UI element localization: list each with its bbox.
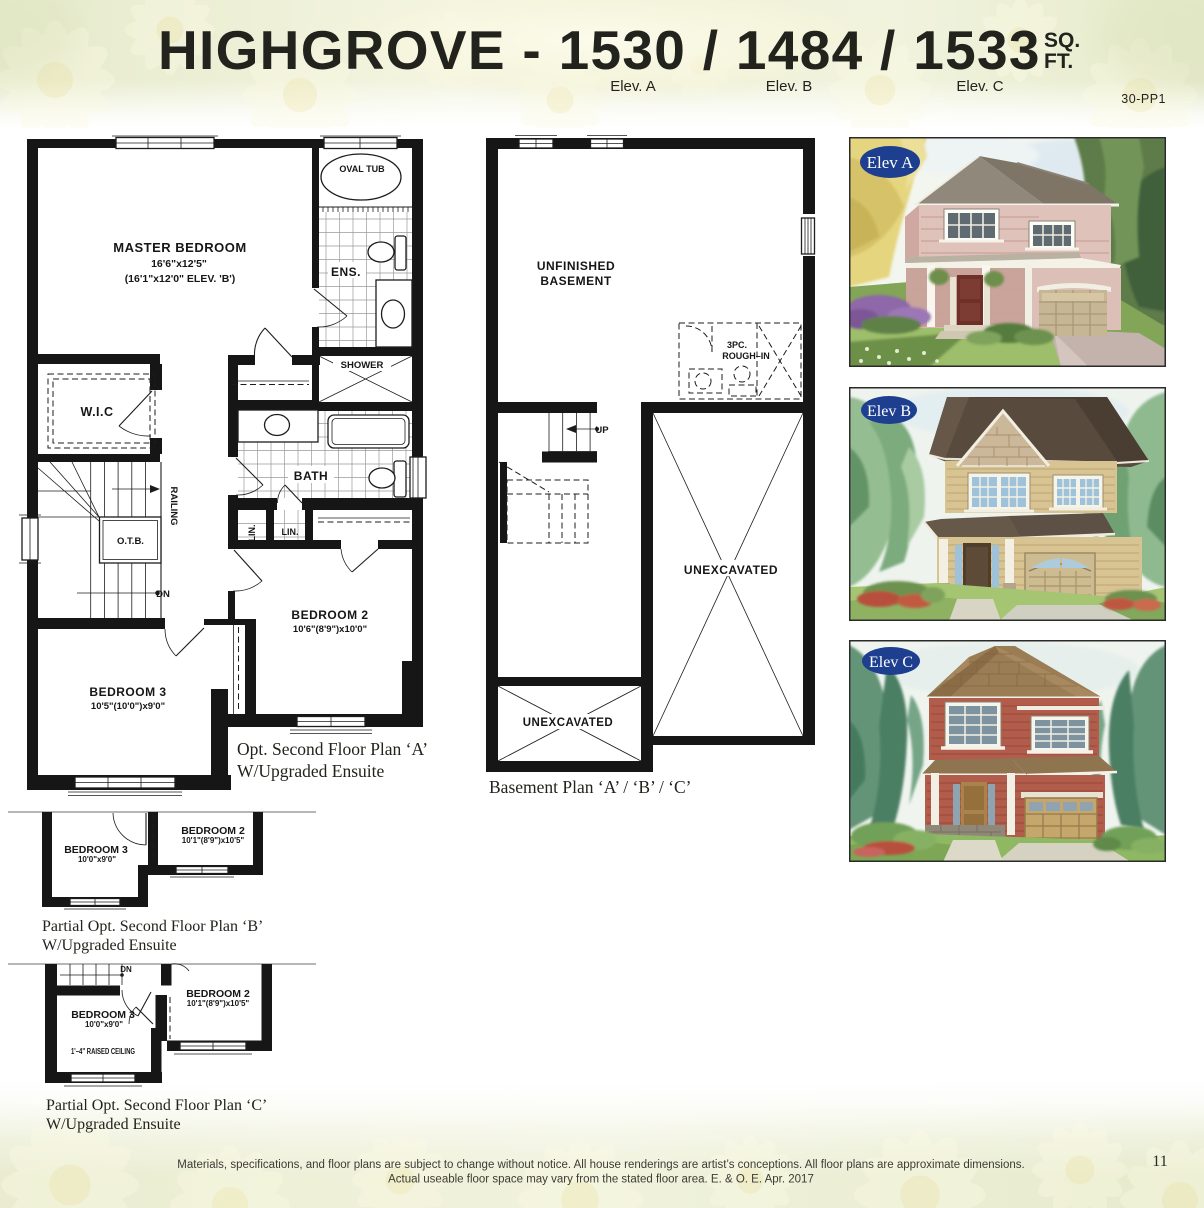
svg-text:10'6"(8'9")x10'0": 10'6"(8'9")x10'0" xyxy=(293,624,367,635)
svg-text:BATH: BATH xyxy=(294,469,328,483)
svg-text:W/Upgraded Ensuite: W/Upgraded Ensuite xyxy=(46,1116,181,1133)
svg-text:OVAL TUB: OVAL TUB xyxy=(339,164,385,174)
svg-text:BASEMENT: BASEMENT xyxy=(540,274,612,288)
svg-text:16'6"x12'5": 16'6"x12'5" xyxy=(151,258,207,270)
svg-text:Elev A: Elev A xyxy=(867,153,914,172)
svg-text:O.T.B.: O.T.B. xyxy=(117,536,144,547)
svg-text:11: 11 xyxy=(1152,1153,1167,1170)
svg-text:W/Upgraded Ensuite: W/Upgraded Ensuite xyxy=(237,761,384,781)
svg-text:Partial Opt. Second Floor Plan: Partial Opt. Second Floor Plan ‘C’ xyxy=(46,1097,267,1114)
svg-text:W/Upgraded Ensuite: W/Upgraded Ensuite xyxy=(42,937,177,954)
svg-text:10'0"x9'0": 10'0"x9'0" xyxy=(85,1020,123,1029)
svg-text:10'1"(8'9")x10'5": 10'1"(8'9")x10'5" xyxy=(182,836,245,845)
svg-text:10'5"(10'0")x9'0": 10'5"(10'0")x9'0" xyxy=(91,701,165,712)
svg-text:Elev B: Elev B xyxy=(867,403,911,420)
svg-text:RAILING: RAILING xyxy=(168,486,179,525)
svg-text:Opt. Second Floor Plan ‘A’: Opt. Second Floor Plan ‘A’ xyxy=(237,739,428,759)
svg-text:BEDROOM 2: BEDROOM 2 xyxy=(291,608,368,622)
svg-text:Materials, specifications, and: Materials, specifications, and floor pla… xyxy=(177,1159,1024,1171)
svg-text:Partial Opt. Second Floor Plan: Partial Opt. Second Floor Plan ‘B’ xyxy=(42,918,263,935)
svg-text:UNEXCAVATED: UNEXCAVATED xyxy=(523,717,613,729)
svg-text:UP: UP xyxy=(595,425,609,436)
svg-text:W.I.C: W.I.C xyxy=(80,405,113,419)
svg-text:LIN.: LIN. xyxy=(282,527,299,537)
svg-text:1'–4" RAISED CEILING: 1'–4" RAISED CEILING xyxy=(71,1047,135,1056)
svg-text:UNEXCAVATED: UNEXCAVATED xyxy=(684,563,778,577)
svg-text:UNFINISHED: UNFINISHED xyxy=(537,259,615,273)
svg-text:Actual useable floor space may: Actual useable floor space may vary from… xyxy=(388,1174,814,1186)
svg-text:DN: DN xyxy=(156,589,170,600)
svg-text:10'1"(8'9")x10'5": 10'1"(8'9")x10'5" xyxy=(187,999,250,1008)
svg-text:MASTER BEDROOM: MASTER BEDROOM xyxy=(113,240,246,255)
svg-text:BEDROOM 3: BEDROOM 3 xyxy=(89,685,166,699)
svg-text:10'0"x9'0": 10'0"x9'0" xyxy=(78,855,116,864)
svg-text:ENS.: ENS. xyxy=(331,265,361,279)
svg-text:ROUGH–IN: ROUGH–IN xyxy=(722,351,770,361)
svg-text:DN: DN xyxy=(120,965,132,974)
svg-text:Basement Plan ‘A’ / ‘B’ / ‘C’: Basement Plan ‘A’ / ‘B’ / ‘C’ xyxy=(489,777,692,797)
svg-text:SHOWER: SHOWER xyxy=(341,360,384,371)
svg-text:Elev C: Elev C xyxy=(869,654,913,671)
svg-text:(16'1"x12'0" ELEV. 'B'): (16'1"x12'0" ELEV. 'B') xyxy=(125,273,236,285)
svg-text:LIN.: LIN. xyxy=(247,525,257,542)
svg-text:3PC.: 3PC. xyxy=(727,340,747,350)
